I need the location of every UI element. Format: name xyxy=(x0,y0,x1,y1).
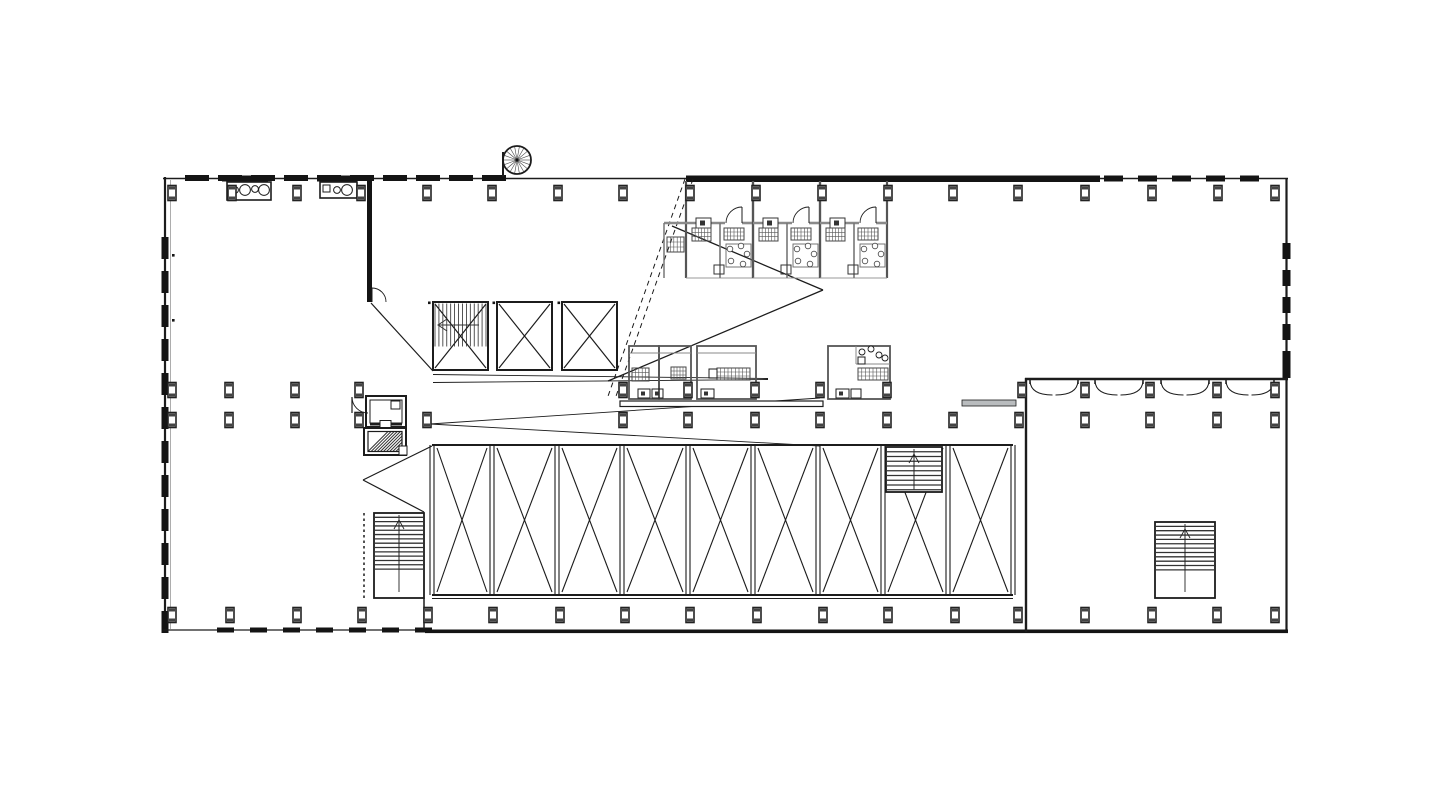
sink-bowl xyxy=(240,185,251,196)
column xyxy=(423,186,431,201)
hatch xyxy=(368,432,402,452)
column xyxy=(225,413,233,428)
sink-bowl xyxy=(259,185,270,196)
column xyxy=(686,186,694,201)
sight-line xyxy=(371,303,433,371)
column xyxy=(291,383,299,398)
floor-plan-page xyxy=(0,0,1440,798)
sight-line xyxy=(433,375,768,379)
hatched-fixture xyxy=(724,228,744,240)
column xyxy=(1271,413,1279,428)
column xyxy=(1015,413,1023,428)
double-door xyxy=(1161,380,1209,395)
column xyxy=(686,608,694,623)
column xyxy=(168,413,176,428)
columns-south xyxy=(168,608,1279,623)
column xyxy=(884,186,892,201)
door-arc-core xyxy=(372,288,386,302)
column xyxy=(358,608,366,623)
column xyxy=(684,383,692,398)
chair xyxy=(872,243,878,249)
door-leaf-arc xyxy=(1030,380,1053,395)
column xyxy=(489,608,497,623)
hotel-room-2 xyxy=(753,181,820,278)
hatched-fixture xyxy=(858,368,888,380)
door-arc xyxy=(793,207,809,223)
chair xyxy=(876,352,882,358)
counter-mid xyxy=(620,401,823,407)
column xyxy=(818,186,826,201)
chair xyxy=(727,246,733,252)
column xyxy=(355,413,363,428)
double-door xyxy=(1226,380,1274,395)
shaft-2 xyxy=(497,302,552,370)
meeting-room-b xyxy=(697,346,756,399)
double-door xyxy=(1030,380,1078,395)
column xyxy=(291,413,299,428)
chair xyxy=(744,251,750,257)
bench xyxy=(962,400,1016,406)
column xyxy=(1213,608,1221,623)
column xyxy=(883,413,891,428)
column xyxy=(949,186,957,201)
column xyxy=(1081,186,1089,201)
door-arc xyxy=(860,207,876,223)
column xyxy=(1146,413,1154,428)
column xyxy=(293,608,301,623)
column xyxy=(751,413,759,428)
column xyxy=(1146,383,1154,398)
chair xyxy=(805,243,811,249)
right-corner-block xyxy=(1283,367,1291,378)
hatched-fixture xyxy=(858,228,878,240)
section-line-dashed xyxy=(607,179,685,399)
spiral-stair xyxy=(503,146,531,174)
column xyxy=(1014,608,1022,623)
counter-2 xyxy=(317,176,357,182)
hatched-fixture xyxy=(759,228,778,241)
column xyxy=(1214,186,1222,201)
floor-plan-drawing xyxy=(0,0,1440,798)
column xyxy=(226,608,234,623)
column xyxy=(355,383,363,398)
chair xyxy=(859,349,865,355)
sink-bowl xyxy=(342,185,353,196)
chair xyxy=(882,355,888,361)
hatched-fixture xyxy=(791,228,811,240)
chair xyxy=(878,251,884,257)
chair xyxy=(807,261,813,267)
column xyxy=(752,186,760,201)
column xyxy=(884,608,892,623)
hatched-fixture xyxy=(667,237,684,252)
stair xyxy=(886,447,942,492)
wall-top-solid xyxy=(686,176,1100,183)
column xyxy=(753,608,761,623)
hotel-room-1 xyxy=(686,181,753,278)
column xyxy=(1018,383,1026,398)
column xyxy=(684,413,692,428)
shaft-3 xyxy=(562,302,617,370)
column xyxy=(883,383,891,398)
column xyxy=(1081,413,1089,428)
stair xyxy=(1155,522,1215,598)
hatched-fixture xyxy=(826,228,845,241)
column xyxy=(228,186,236,201)
newel xyxy=(516,159,519,162)
column xyxy=(556,608,564,623)
column xyxy=(424,608,432,623)
column xyxy=(488,186,496,201)
column xyxy=(1014,186,1022,201)
column xyxy=(951,608,959,623)
chair xyxy=(861,246,867,252)
core-wall xyxy=(367,178,372,302)
chair xyxy=(740,261,746,267)
door-leaf-arc xyxy=(1161,380,1184,395)
double-door xyxy=(1095,380,1143,395)
column xyxy=(357,186,365,201)
section-line-dashed xyxy=(615,179,693,399)
column xyxy=(819,608,827,623)
column xyxy=(1148,608,1156,623)
wall-bottom-east xyxy=(425,630,1288,634)
chair xyxy=(874,261,880,267)
column xyxy=(1271,608,1279,623)
column xyxy=(293,186,301,201)
hatched-fixture xyxy=(692,228,711,241)
sight-line xyxy=(608,290,823,381)
chair xyxy=(868,346,874,352)
column xyxy=(949,413,957,428)
column xyxy=(619,383,627,398)
sight-line xyxy=(363,480,424,512)
chair xyxy=(738,243,744,249)
hotel-room-3 xyxy=(820,181,887,278)
chair xyxy=(811,251,817,257)
shaft-stair-core xyxy=(433,302,488,370)
column xyxy=(423,413,431,428)
door-leaf-arc xyxy=(1187,380,1210,395)
door-leaf-arc xyxy=(1056,380,1079,395)
column xyxy=(1271,186,1279,201)
column xyxy=(619,413,627,428)
column xyxy=(1213,383,1221,398)
column xyxy=(816,383,824,398)
column xyxy=(1148,186,1156,201)
column xyxy=(554,186,562,201)
door-leaf-arc xyxy=(1095,380,1118,395)
column xyxy=(168,383,176,398)
door-arc xyxy=(726,207,742,223)
column xyxy=(1213,413,1221,428)
column xyxy=(621,608,629,623)
chair xyxy=(795,258,801,264)
columns-mid-lower xyxy=(168,413,1279,428)
column xyxy=(168,608,176,623)
column xyxy=(225,383,233,398)
column xyxy=(751,383,759,398)
door-leaf-arc xyxy=(1121,380,1144,395)
counter-1 xyxy=(222,176,268,182)
chair xyxy=(794,246,800,252)
chair xyxy=(862,258,868,264)
chair xyxy=(728,258,734,264)
column xyxy=(1081,608,1089,623)
sight-line xyxy=(672,226,823,290)
column xyxy=(1081,383,1089,398)
column xyxy=(619,186,627,201)
column xyxy=(1271,383,1279,398)
column xyxy=(816,413,824,428)
sink-bowl xyxy=(252,186,259,193)
door-leaf-arc xyxy=(1226,380,1249,395)
column xyxy=(168,186,176,201)
sink-bowl xyxy=(334,187,341,194)
stair xyxy=(374,513,424,598)
